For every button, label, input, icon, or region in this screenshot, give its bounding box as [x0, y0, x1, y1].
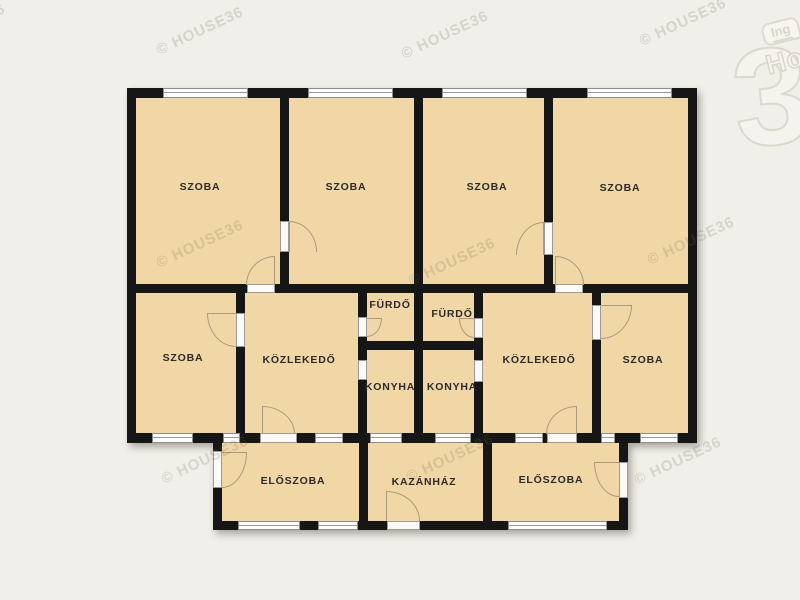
room-label-eloszoba-right: ELŐSZOBA: [519, 474, 584, 486]
room-label-furdo-right: FÜRDŐ: [431, 308, 472, 320]
wall-eloszoba-kazanhaz: [359, 443, 368, 521]
door-opening: [387, 521, 420, 530]
window: [308, 88, 393, 98]
room-label-szoba-2: SZOBA: [326, 181, 367, 193]
room-label-szoba-3: SZOBA: [467, 181, 508, 193]
room-label-konyha-left: KONYHA: [365, 381, 415, 393]
window: [508, 521, 607, 530]
window: [318, 521, 358, 530]
wall-szoba3-szoba4: [544, 98, 553, 284]
door-opening: [247, 284, 275, 293]
window: [640, 433, 678, 443]
door-opening: [358, 317, 367, 337]
room-label-szoba-mid-right: SZOBA: [623, 354, 664, 366]
door-opening: [474, 360, 483, 382]
floor-plan-image: SZOBA SZOBA SZOBA SZOBA SZOBA KÖZLEKEDŐ …: [0, 0, 800, 600]
door-opening: [619, 462, 628, 498]
wall-outer-left: [127, 88, 136, 443]
window: [315, 433, 343, 443]
room-label-konyha-right: KONYHA: [427, 381, 477, 393]
room-label-furdo-left: FÜRDŐ: [369, 299, 410, 311]
room-label-szoba-4: SZOBA: [600, 182, 641, 194]
window: [163, 88, 248, 98]
door-opening: [555, 284, 583, 293]
window: [601, 433, 615, 443]
wall-kazanhaz-eloszoba: [483, 443, 492, 521]
wall-szoba1-szoba2: [280, 98, 289, 284]
door-opening: [547, 433, 577, 443]
door-opening: [358, 360, 367, 380]
wall-outer-right: [688, 88, 697, 443]
window: [152, 433, 193, 443]
door-opening: [280, 221, 289, 252]
window: [238, 521, 300, 530]
door-opening: [260, 433, 297, 443]
room-label-kozlekedo-left: KÖZLEKEDŐ: [262, 354, 335, 366]
window: [515, 433, 543, 443]
window: [587, 88, 672, 98]
door-opening: [474, 318, 483, 338]
room-label-szoba-1: SZOBA: [180, 181, 221, 193]
window: [442, 88, 527, 98]
door-opening: [592, 305, 601, 340]
door-opening: [544, 222, 553, 255]
room-label-eloszoba-left: ELŐSZOBA: [261, 475, 326, 487]
room-label-szoba-mid-left: SZOBA: [163, 352, 204, 364]
room-label-kazanhaz: KAZÁNHÁZ: [392, 476, 457, 488]
door-opening: [236, 313, 245, 347]
window: [370, 433, 402, 443]
room-label-kozlekedo-right: KÖZLEKEDŐ: [502, 354, 575, 366]
